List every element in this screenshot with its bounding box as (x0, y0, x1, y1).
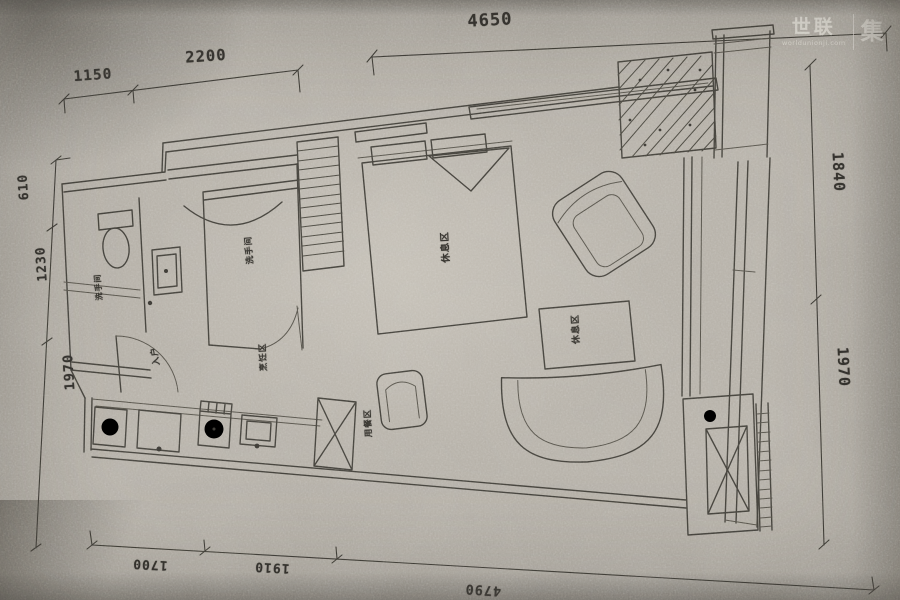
toilet-bowl (101, 227, 131, 269)
sofa (501, 364, 669, 467)
label-kitchen-area: 烹饪区 (259, 343, 269, 372)
floor-plan-drawing (0, 0, 900, 600)
crossed-unit (314, 398, 356, 470)
rug (539, 301, 635, 369)
dim-left-610: 610 (17, 173, 32, 200)
wardrobe (297, 137, 344, 271)
armchair (546, 165, 661, 282)
window-sill (355, 78, 718, 142)
shower-room (184, 164, 303, 350)
dim-bottom-1700: 1700 (132, 557, 168, 572)
walls (62, 86, 713, 508)
dim-bottom-overall: 4790 (464, 581, 501, 597)
dim-right-1840: 1840 (829, 152, 846, 193)
label-lounge-area: 休息区 (572, 314, 583, 344)
shower-screen-curve (184, 202, 282, 225)
dining-chair (376, 369, 428, 430)
entry-door (116, 336, 178, 392)
dim-left-1230: 1230 (34, 246, 49, 282)
label-sleeping-area: 休息区 (440, 231, 451, 263)
column (618, 52, 716, 158)
dim-left-1970: 1970 (62, 353, 78, 390)
toilet-tank (98, 210, 133, 230)
dim-top-seg2: 2200 (185, 48, 227, 66)
label-dining-area: 用餐区 (364, 409, 374, 438)
label-bathroom-2: 洗手间 (245, 235, 256, 264)
floorplan-photo: 4650 1150 2200 610 1230 1970 1840 1970 1… (0, 0, 900, 600)
dim-top-seg1: 1150 (73, 67, 113, 84)
dim-top-overall: 4650 (467, 11, 513, 30)
dimension-lines (31, 26, 891, 594)
dim-right-1970: 1970 (834, 347, 851, 388)
toilet-room (64, 198, 182, 332)
dim-bottom-1910: 1910 (254, 560, 290, 575)
kitchen-cabinet-2 (137, 410, 181, 452)
